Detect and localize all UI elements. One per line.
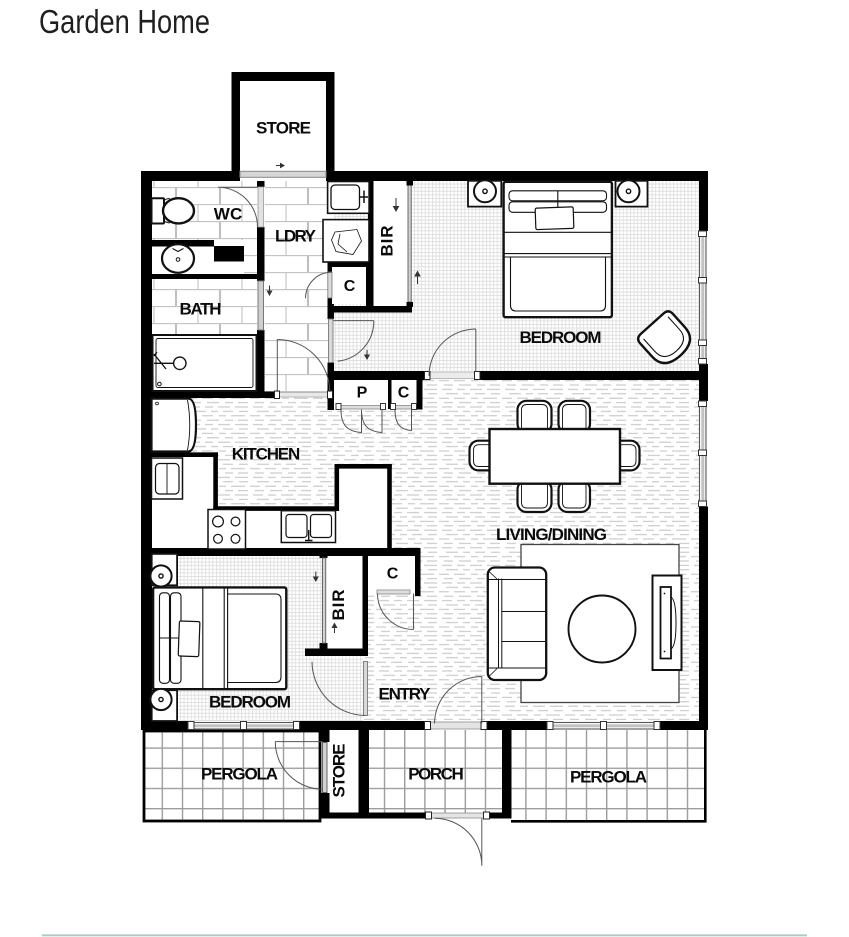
svg-text:KITCHEN: KITCHEN (232, 445, 301, 464)
svg-text:BIR: BIR (329, 590, 348, 621)
svg-text:C: C (387, 566, 399, 583)
svg-text:BEDROOM: BEDROOM (520, 328, 602, 347)
svg-text:LDRY: LDRY (275, 227, 317, 246)
svg-text:BATH: BATH (180, 300, 222, 319)
svg-text:PERGOLA: PERGOLA (570, 768, 647, 787)
svg-text:LIVING/DINING: LIVING/DINING (496, 525, 607, 544)
svg-text:WC: WC (214, 205, 243, 224)
svg-text:PERGOLA: PERGOLA (201, 765, 278, 784)
svg-text:BIR: BIR (378, 226, 397, 257)
svg-text:P: P (357, 385, 368, 402)
svg-text:BEDROOM: BEDROOM (209, 693, 291, 712)
svg-text:PORCH: PORCH (408, 764, 464, 783)
svg-text:C: C (344, 278, 356, 295)
svg-text:C: C (398, 385, 410, 402)
svg-text:Garden Home: Garden Home (39, 4, 210, 41)
svg-text:STORE: STORE (256, 119, 311, 138)
svg-text:STORE: STORE (330, 744, 349, 798)
svg-text:ENTRY: ENTRY (379, 685, 432, 704)
